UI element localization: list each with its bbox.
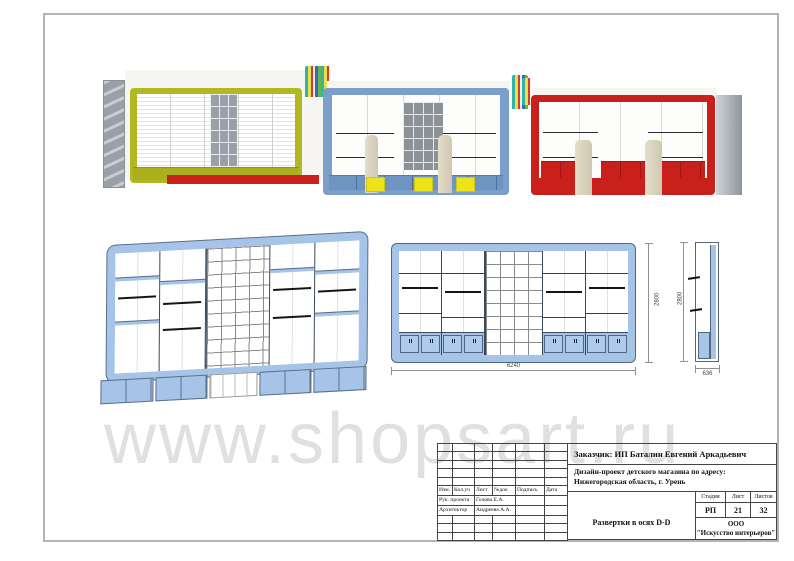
side-bracket <box>690 308 702 312</box>
sig-role: Архитектор <box>438 506 475 516</box>
cabinet-door <box>464 335 483 353</box>
stamp: Заказчик: ИП Баталин Евгений Аркадьевич … <box>567 443 777 540</box>
iso-bay <box>314 240 359 362</box>
elevation-bay <box>442 251 485 355</box>
dimension-side-height-value: 2800 <box>678 292 684 305</box>
company-line2: "Искусство интерьеров" <box>697 529 776 538</box>
title-block: Изм. Кол.уч Лист №док Подпись Дата Рук. … <box>437 443 777 540</box>
sig-name: Голова Е.А. <box>475 496 516 506</box>
olive-frame <box>130 88 302 183</box>
sheet-number-header: Лист <box>726 492 751 503</box>
sheet-number-value: 21 <box>726 503 751 518</box>
base-cabinet <box>543 332 585 355</box>
side-body <box>695 242 719 362</box>
cabinet-door <box>608 335 627 353</box>
iso-bay <box>269 243 315 365</box>
dimension-width-value: 6240 <box>507 363 520 369</box>
elevation-bay <box>543 251 586 355</box>
yellow-stool <box>414 177 433 192</box>
sig-col-ndok: №док <box>493 486 516 496</box>
company-line1: ООО <box>728 520 744 529</box>
render-blue-wall <box>323 75 528 195</box>
iso-bay <box>115 251 161 373</box>
cubby-base <box>210 372 258 399</box>
red-base-cabinet <box>601 161 651 178</box>
base-cabinet <box>314 366 367 393</box>
sheet-count-value: 32 <box>751 503 776 518</box>
cabinet-door <box>544 335 563 353</box>
yellow-stool <box>366 177 385 192</box>
render-olive-wall <box>103 62 325 188</box>
side-back-panel <box>710 245 716 359</box>
base-cabinet <box>100 378 153 405</box>
hang-rail <box>543 132 598 133</box>
cabinet-door <box>400 335 419 353</box>
stage-value: РП <box>696 503 726 518</box>
red-base-cabinet <box>661 161 705 178</box>
base-cabinet <box>155 375 208 402</box>
cabinet-door <box>443 335 462 353</box>
render-red-wall <box>522 78 741 195</box>
sheet-count-header: Листов <box>751 492 776 503</box>
stage-header: Стадия <box>696 492 726 503</box>
sig-col-list: Лист <box>475 486 493 496</box>
sig-col-koluch: Кол.уч <box>453 486 475 496</box>
support-pillar <box>575 140 592 195</box>
dimension-line-depth: 636 <box>695 368 720 370</box>
side-base-cabinet <box>698 332 710 359</box>
base-cabinet <box>442 332 484 355</box>
cubby-column <box>403 102 443 170</box>
company-name: ООО "Искусство интерьеров" <box>696 518 776 539</box>
project-address-line2: Нижегородская область, г. Урень <box>574 477 770 487</box>
striped-column <box>522 78 531 105</box>
red-floor-strip <box>167 175 319 184</box>
sig-role: Рук. проекта <box>438 496 475 506</box>
elevation-bay <box>586 251 628 355</box>
iso-cubby-grid <box>205 245 270 369</box>
stage-table: Стадия Лист Листов РП 21 32 <box>696 492 776 518</box>
dimension-depth-value: 636 <box>702 371 712 377</box>
sig-col-podpis: Подпись <box>516 486 545 496</box>
front-elevation <box>391 243 636 363</box>
dimension-line-side-height: 2800 <box>683 242 685 362</box>
elevation-interior <box>399 251 628 355</box>
iso-bay <box>160 249 206 371</box>
wall-panels <box>332 95 500 178</box>
project-address-line1: Дизайн-проект детского магазина по адрес… <box>574 467 770 477</box>
side-elevation <box>695 242 719 362</box>
yellow-stool <box>456 177 475 192</box>
hang-rail <box>648 132 703 133</box>
iso-frame <box>106 231 369 383</box>
gray-side-wall <box>716 95 742 195</box>
dimension-line-width: 6240 <box>391 370 636 372</box>
base-cabinet <box>399 332 441 355</box>
sig-col-izm: Изм. <box>438 486 453 496</box>
sheet-title: Развертки в осях D-D <box>568 492 696 539</box>
signature-table: Изм. Кол.уч Лист №док Подпись Дата Рук. … <box>437 443 568 541</box>
wall-panels <box>539 102 707 178</box>
elevation-cubby-grid <box>485 251 543 355</box>
base-cabinet <box>259 369 312 396</box>
elevation-frame <box>391 243 636 363</box>
sig-col-data: Дата <box>545 486 568 496</box>
red-frame <box>531 95 715 195</box>
base-cabinet <box>586 332 628 355</box>
dimension-height-value: 2800 <box>655 293 661 306</box>
slatwall-panels <box>137 94 295 169</box>
iso-interior <box>115 240 360 373</box>
elevation-bay <box>399 251 442 355</box>
support-pillar <box>645 140 662 195</box>
cabinet-door <box>565 335 584 353</box>
customer-line: Заказчик: ИП Баталин Евгений Аркадьевич <box>568 444 776 465</box>
cabinet-door <box>587 335 606 353</box>
cubby-column <box>210 94 237 169</box>
hang-rail <box>336 133 394 134</box>
cabinet-door <box>421 335 440 353</box>
drawing-sheet: www.shopsart.ru <box>0 0 794 561</box>
sig-name: Андреева А.А. <box>475 506 516 516</box>
support-pillar <box>438 135 452 193</box>
hang-rail <box>438 133 496 134</box>
project-address: Дизайн-проект детского магазина по адрес… <box>568 465 776 492</box>
isometric-view <box>106 231 369 383</box>
gray-shelf-unit <box>103 80 125 188</box>
dimension-line-height: 2800 <box>648 243 650 363</box>
red-base-cabinet <box>541 161 579 178</box>
